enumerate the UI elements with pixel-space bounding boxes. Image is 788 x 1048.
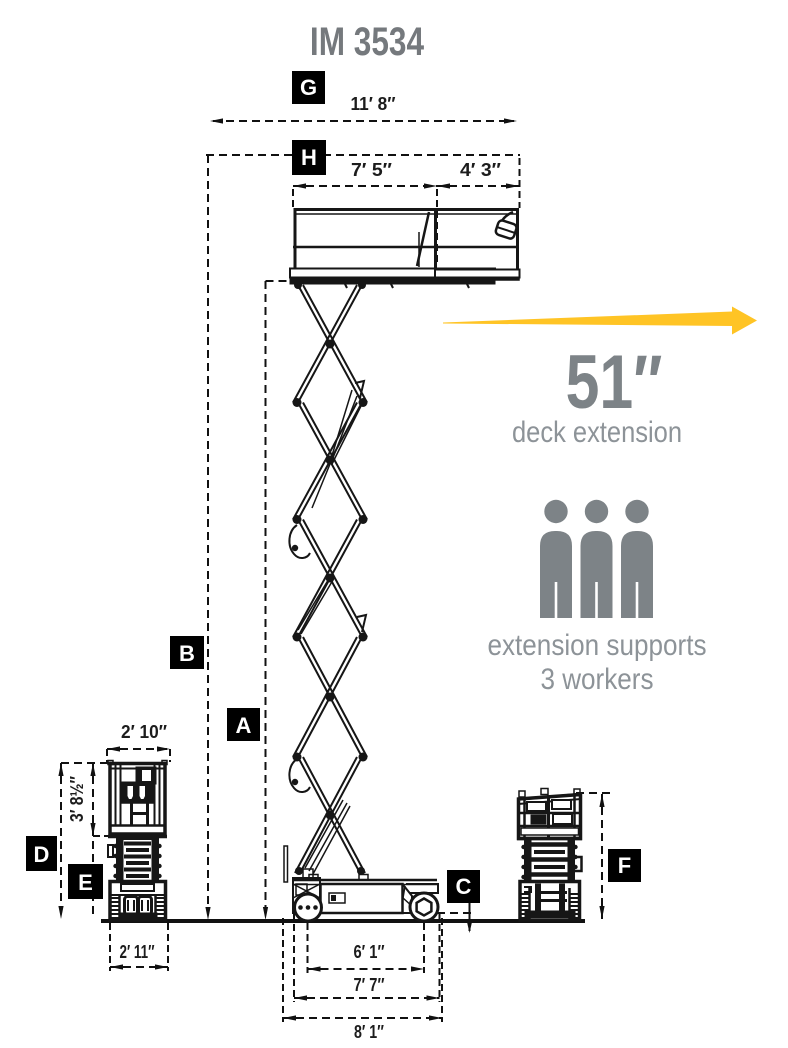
svg-text:C: C (456, 874, 472, 899)
svg-text:IM 3534: IM 3534 (310, 18, 424, 63)
svg-text:B: B (179, 641, 195, 666)
svg-text:8′ 1″: 8′ 1″ (354, 1022, 384, 1042)
svg-text:E: E (78, 870, 93, 895)
svg-text:11′ 8″: 11′ 8″ (351, 94, 396, 114)
svg-text:7′ 5″: 7′ 5″ (351, 160, 392, 180)
svg-text:F: F (618, 853, 631, 878)
svg-text:2′ 10″: 2′ 10″ (121, 722, 167, 742)
svg-text:A: A (236, 713, 252, 738)
svg-text:3 workers: 3 workers (540, 662, 653, 695)
svg-text:2′ 11″: 2′ 11″ (120, 942, 155, 962)
svg-text:H: H (301, 145, 317, 170)
svg-text:G: G (300, 75, 317, 100)
svg-text:D: D (34, 842, 50, 867)
svg-text:extension supports: extension supports (487, 628, 706, 661)
svg-text:3′ 8½″: 3′ 8½″ (67, 776, 87, 822)
svg-text:51″: 51″ (566, 340, 663, 425)
svg-text:6′ 1″: 6′ 1″ (354, 942, 385, 962)
svg-text:deck extension: deck extension (512, 415, 682, 448)
svg-text:4′ 3″: 4′ 3″ (460, 160, 501, 180)
svg-text:7′ 7″: 7′ 7″ (354, 975, 385, 995)
